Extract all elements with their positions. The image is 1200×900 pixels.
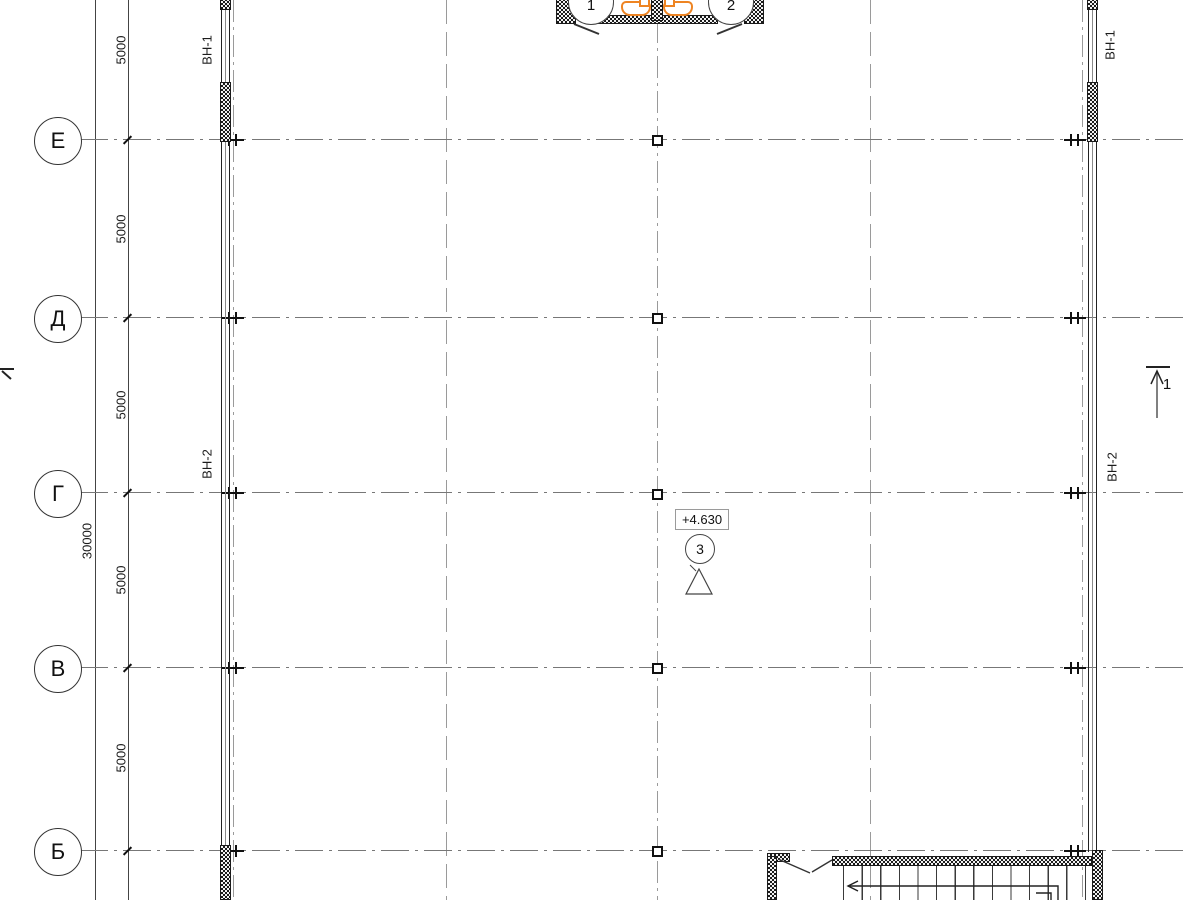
level-mark: +4.630 xyxy=(675,509,729,530)
left-wall-pier xyxy=(220,0,231,10)
dim-bay-label: 5000 xyxy=(114,391,129,420)
left-wall-pier xyxy=(220,845,231,900)
axis-label: Д xyxy=(51,306,66,332)
column-marker xyxy=(652,846,663,857)
window-tag-right-mid: ВН-2 xyxy=(1105,452,1120,482)
axis-line-D xyxy=(80,317,1185,318)
axis-label: Б xyxy=(51,839,65,865)
vestibule-splay-right xyxy=(717,24,742,34)
left-wall-pier xyxy=(220,82,231,142)
axis-bubble-E: Е xyxy=(34,117,82,165)
dimension-line-total xyxy=(95,0,96,900)
axis-label: Г xyxy=(52,481,64,507)
axis-line-B xyxy=(80,850,1185,851)
toilet-tank-right xyxy=(664,0,675,7)
node-triangle-label: 2 xyxy=(690,578,708,592)
right-wall-corner-pier xyxy=(1092,850,1103,900)
window-tag-left-top: ВН-1 xyxy=(200,35,215,65)
column-marker xyxy=(652,135,663,146)
section-mark-bar-right xyxy=(1146,366,1170,368)
section-mark-bar-left xyxy=(0,368,14,370)
axis-bubble-V: В xyxy=(34,645,82,693)
axis-bubble-D: Д xyxy=(34,295,82,343)
stair-wall-left xyxy=(767,856,777,900)
axis-label: Е xyxy=(51,128,66,154)
wall-axis-tick xyxy=(1064,487,1086,499)
grid-line-v2 xyxy=(446,0,447,900)
vestibule-center-stub xyxy=(651,0,663,21)
dim-bay-label: 5000 xyxy=(114,566,129,595)
column-marker xyxy=(652,489,663,500)
right-wall-pier xyxy=(1087,82,1098,142)
grid-line-v4 xyxy=(870,0,871,900)
node-circle: 3 xyxy=(685,534,715,564)
axis-label: В xyxy=(51,656,66,682)
column-marker xyxy=(652,663,663,674)
door-leaf-right xyxy=(812,860,832,872)
axis-bubble-G: Г xyxy=(34,470,82,518)
stair-treads xyxy=(843,866,1086,900)
dim-bay-label: 5000 xyxy=(114,215,129,244)
wall-axis-tick xyxy=(1064,662,1086,674)
detail-bubble-2-label: 2 xyxy=(723,0,739,13)
axis-line-V xyxy=(80,667,1185,668)
section-mark-label: 1 xyxy=(1160,376,1174,392)
toilet-tank-left xyxy=(639,0,650,7)
floor-plan-canvas: Е Д Г В Б 5000 5000 5000 5000 5000 30000 xyxy=(0,0,1200,900)
grid-line-center-axis xyxy=(657,21,658,900)
right-wall-pier xyxy=(1087,0,1098,10)
wall-axis-tick xyxy=(1064,134,1086,146)
wall-axis-tick xyxy=(1064,312,1086,324)
vestibule-splay-left xyxy=(574,24,599,34)
dim-bay-label: 5000 xyxy=(114,36,129,65)
dim-total-label: 30000 xyxy=(80,523,95,559)
section-arrow-fragment-left xyxy=(2,371,11,379)
window-tag-left-mid: ВН-2 xyxy=(200,449,215,479)
linework-overlay xyxy=(0,0,1200,900)
node-circle-label: 3 xyxy=(696,541,704,557)
stair-wall-top xyxy=(832,856,1092,866)
node-triangle-leader xyxy=(690,565,696,571)
axis-line-G xyxy=(80,492,1185,493)
axis-bubble-B: Б xyxy=(34,828,82,876)
window-tag-right-top: ВН-1 xyxy=(1103,30,1118,60)
column-marker xyxy=(652,313,663,324)
axis-line-E xyxy=(80,139,1185,140)
dim-bay-label: 5000 xyxy=(114,744,129,773)
detail-bubble-1-label: 1 xyxy=(583,0,599,13)
